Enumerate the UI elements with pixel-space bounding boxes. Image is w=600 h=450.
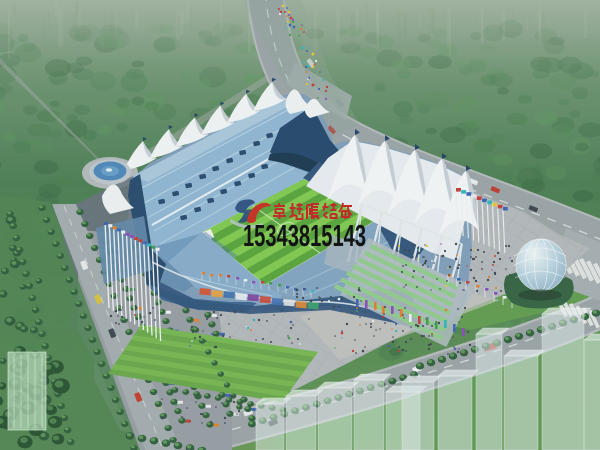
svg-text:15343815143: 15343815143 — [243, 218, 366, 253]
